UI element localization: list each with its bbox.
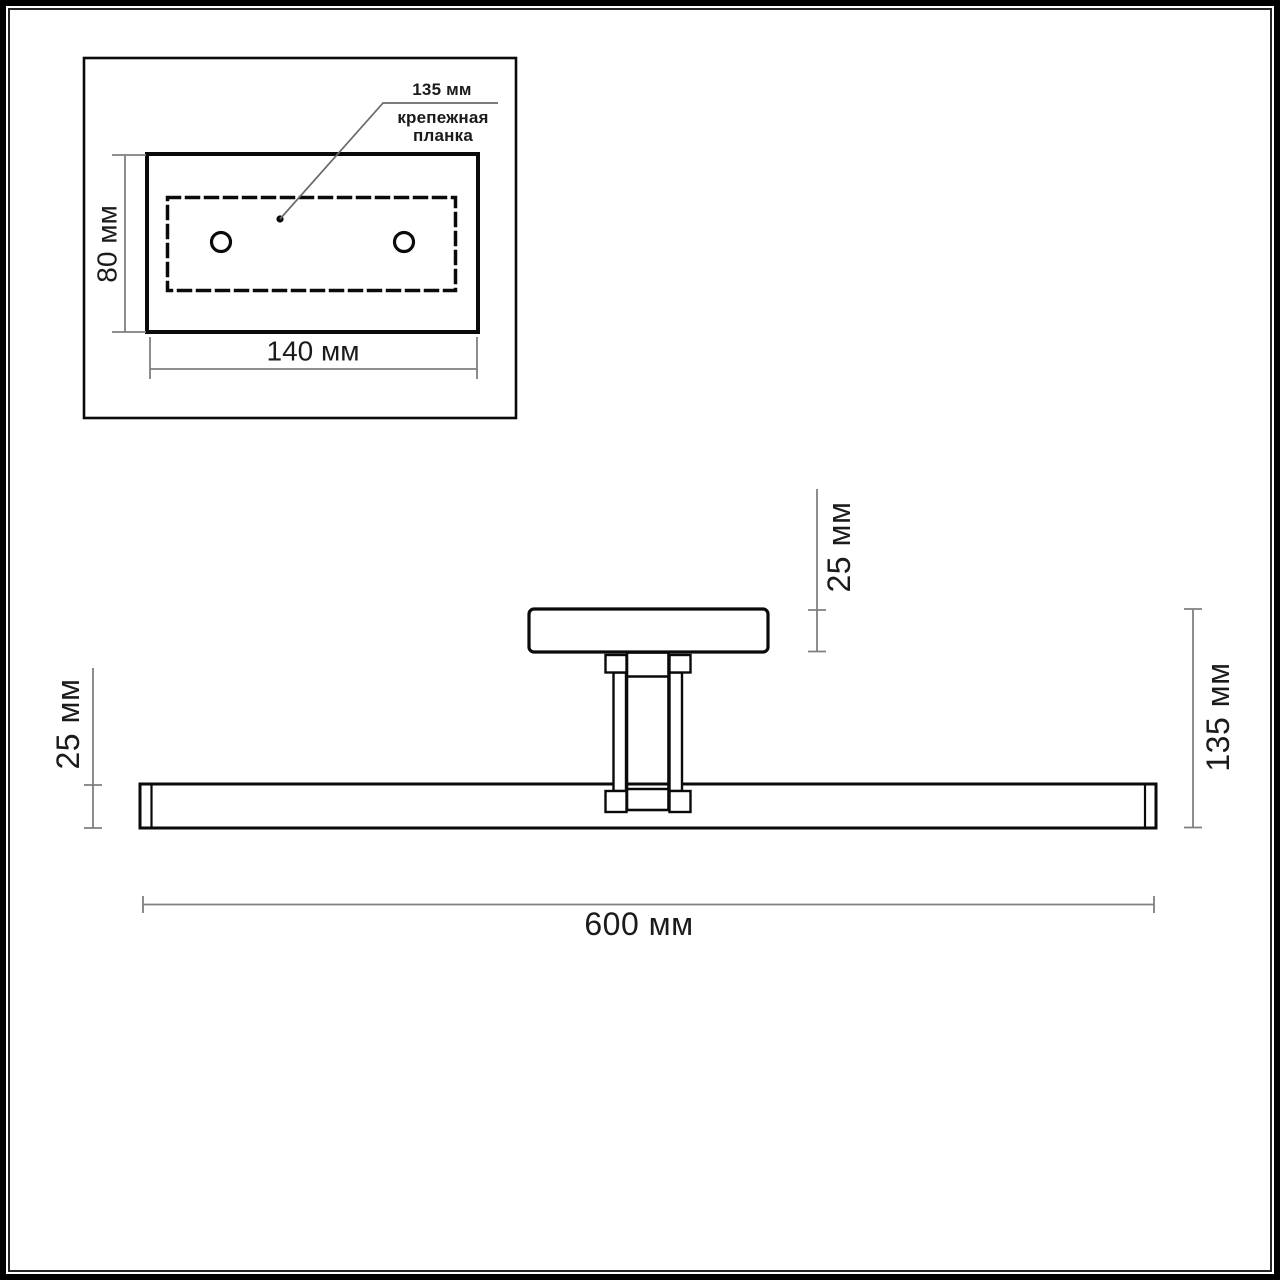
- total-height-dimension-label: 135 мм: [1202, 662, 1236, 771]
- technical-drawing-page: 135 мм крепежная планка 80 мм 140 мм 25 …: [0, 0, 1280, 1280]
- light-bar-body: [140, 784, 1156, 828]
- drawing-canvas: [0, 0, 1280, 1280]
- length-dimension-label: 600 мм: [584, 908, 693, 942]
- bar-height-dimension-lines: [84, 668, 102, 828]
- bar-height-dimension-label: 25 мм: [52, 679, 86, 770]
- mounting-plate-outline: [147, 154, 478, 332]
- annotation-text-line1: крепежная: [397, 109, 488, 127]
- inset-height-dimension-label: 80 мм: [92, 205, 121, 282]
- annotation-value-label: 135 мм: [412, 81, 471, 99]
- stand-post-right-stem: [670, 673, 683, 792]
- stand-post-right-bottom-flange: [670, 791, 691, 812]
- annotation-text-label: крепежная планка: [397, 109, 488, 145]
- stand-post-left-bottom-flange: [606, 791, 627, 812]
- fixture-side-view: [84, 489, 1202, 913]
- wall-plate-side-view: [529, 609, 768, 652]
- stand-post-left-stem: [614, 673, 627, 792]
- plate-height-dimension-label: 25 мм: [823, 502, 857, 593]
- annotation-text-line2: планка: [397, 127, 488, 145]
- stand-post-left-top-flange: [606, 655, 627, 673]
- stand-post-right-top-flange: [670, 655, 691, 673]
- inset-width-dimension-label: 140 мм: [267, 336, 360, 365]
